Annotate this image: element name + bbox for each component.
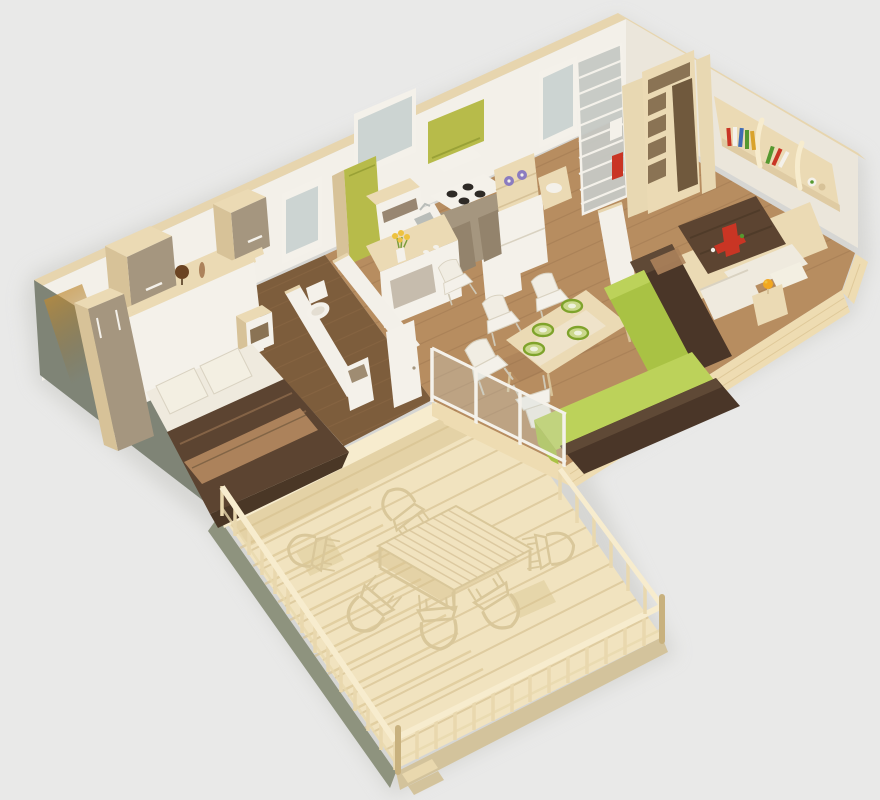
floorplan-3d-render bbox=[0, 0, 880, 800]
red-sign bbox=[612, 152, 623, 180]
entry-wardrobe bbox=[642, 50, 716, 214]
window-entry bbox=[539, 56, 577, 148]
